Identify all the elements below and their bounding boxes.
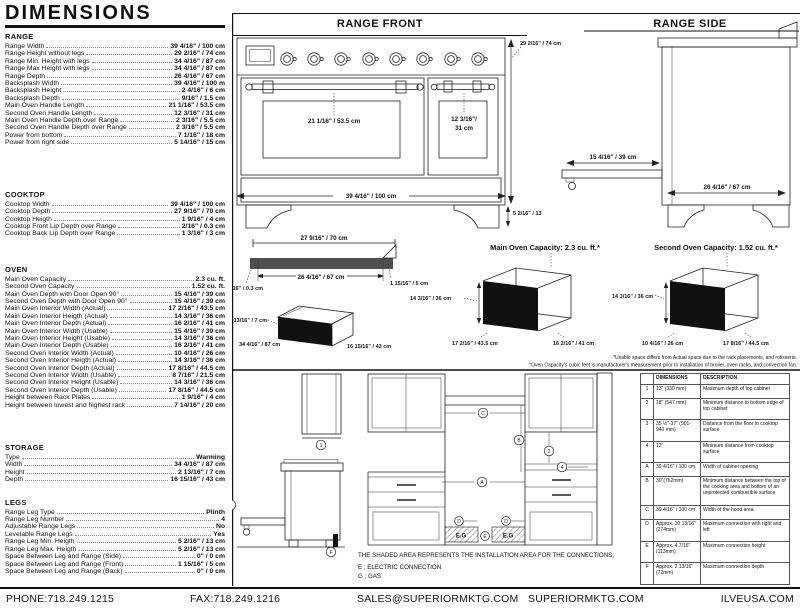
- marker-d-right: D: [502, 517, 511, 526]
- section-heading: STORAGE: [5, 443, 225, 452]
- spec-row: Range Width39 4/16" / 100 cm: [5, 43, 225, 50]
- footer-fax: FAX:718.249.1216: [190, 593, 280, 605]
- spec-row: Main Oven Capacity2.3 cu. ft.: [5, 276, 225, 283]
- spec-section: COOKTOPCooktop Width39 4/16" / 100 cmCoo…: [5, 190, 225, 238]
- spec-row: Second Oven Interior Width (Actual)10 4/…: [5, 350, 225, 357]
- section-heading: OVEN: [5, 265, 225, 274]
- spec-row: Space Between Leg and Range (Side)0" / 0…: [5, 553, 225, 560]
- leg-height-dim: 5 2/16" / 13: [513, 211, 542, 217]
- cooktop-inner-dim: 26 4/16" / 67 cm: [297, 274, 344, 281]
- spec-row: Range Leg Min. Heigth5 2/16" / 13 cm: [5, 538, 225, 545]
- section-heading: LEGS: [5, 498, 225, 507]
- cooktop-outer-dim: 27 9/16" / 70 cm: [300, 235, 347, 242]
- table-row: C39 4/16" / 100 cmWidth of the hood area: [641, 506, 790, 520]
- installation-diagram: E.G E.G 1 2 3 4 A B C D D: [232, 373, 614, 580]
- spec-row: Main Oven Interior Width (Usable)15 4/16…: [5, 328, 225, 335]
- second-handle-dim-1: 12 3/16"/: [451, 116, 477, 123]
- spec-row: Second Oven Capacity1.52 cu. ft.: [5, 283, 225, 290]
- footer-bar: PHONE:718.249.1215 FAX:718.249.1216 SALE…: [0, 587, 800, 609]
- spec-row: Main Oven Interior Height (Usable)14 3/1…: [5, 335, 225, 342]
- spec-row: Range Height without legs29 2/16" / 74 c…: [5, 50, 225, 57]
- side-left-leg: [668, 205, 704, 227]
- range-side-title: RANGE SIDE: [653, 18, 726, 30]
- marker-3: 3: [232, 500, 236, 510]
- spec-sections: RANGERange Width39 4/16" / 100 cmRange H…: [5, 32, 225, 575]
- backsplash-profile: [779, 22, 797, 38]
- spec-row: Main Oven Interior Heigth (Actual)14 3/1…: [5, 313, 225, 320]
- spec-section: OVENMain Oven Capacity2.3 cu. ft.Second …: [5, 265, 225, 409]
- spec-row: Depth16 15/16" / 43 cm: [5, 476, 225, 483]
- marker-c: C: [478, 408, 488, 418]
- page-title: DIMENSIONS: [5, 3, 225, 23]
- range-front-title: RANGE FRONT: [337, 18, 423, 30]
- spec-row: Cooktop Back Lip Depth over Range1 3/16"…: [5, 230, 225, 237]
- spec-row: Range Leg Number4: [5, 516, 225, 523]
- shaded-area-note: THE SHADED AREA REPRESENTS THE INSTALLAT…: [358, 552, 614, 559]
- spec-row: Main Oven Depth with Door Open 90°15 4/1…: [5, 291, 225, 298]
- control-display: [246, 46, 274, 65]
- svg-text:C: C: [481, 411, 485, 417]
- burner-knobs: [281, 53, 488, 65]
- svg-text:2: 2: [548, 449, 551, 455]
- spec-row: Space Between Leg and Range (Back)0" / 0…: [5, 568, 225, 575]
- main-oven-capacity-title: Main Oven Capacity: 2.3 cu. ft.*: [490, 243, 600, 252]
- spec-row: Cooktop Width39 4/16" / 100 cm: [5, 201, 225, 208]
- spec-row: Range Min. Height with legs34 4/16" / 87…: [5, 58, 225, 65]
- second-handle-dim-2: 31 cm: [455, 125, 473, 132]
- spec-row: Adjustable Range LegsNo: [5, 523, 225, 530]
- spec-row: Main Oven Interior Width (Actual)17 2/16…: [5, 305, 225, 312]
- spec-row: Main Oven Handle Depth over Range2 3/16"…: [5, 117, 225, 124]
- capacity-footnote-1: *Usable space differs from Actual space …: [613, 355, 797, 361]
- capacity-footnote-2: *Oven Capacity's cubic feet is manufactu…: [529, 363, 797, 369]
- gas-connection-note: G ; GAS: [358, 573, 381, 580]
- spec-row: Backsplash Depth9/16" / 1.5 cm: [5, 95, 225, 102]
- eg-label-right: E.G: [503, 534, 514, 540]
- main-handle-dim: 21 1/16" / 53.5 cm: [308, 118, 361, 125]
- spec-row: Range Depth26 4/16" / 67 cm: [5, 73, 225, 80]
- eg-label-left: E.G: [456, 534, 467, 540]
- main-oven-capacity-diagram: Main Oven Capacity: 2.3 cu. ft.* 14 3/16…: [410, 243, 600, 347]
- storage-drawer-diagram: 2 13/16" / 7 cm 34 4/16" / 87 cm 16 15/1…: [232, 306, 391, 350]
- second-oven-capacity-title: Second Oven Capacity: 1.52 cu. ft.*: [654, 243, 778, 252]
- cooktop-back-lip-dim: 1 15/16" / 5 cm: [390, 281, 428, 287]
- header-dimensions: DIMENSIONS: [654, 374, 701, 385]
- spec-sheet: DIMENSIONS RANGERange Width39 4/16" / 10…: [0, 0, 800, 609]
- range-side-diagram: RANGE SIDE 15 4/16" / 39 cm 26 4/16" / 6…: [562, 18, 797, 227]
- main-oven-depth-dim: 16 2/16" / 41 cm: [553, 341, 594, 347]
- marker-e: E: [481, 532, 490, 541]
- spec-row: Second Oven Handle Depth over Range2 3/1…: [5, 124, 225, 131]
- spec-row: Cooktop Heigth1 9/16" / 4 cm: [5, 216, 225, 223]
- second-oven-depth-dim: 17 8/16" / 44.5 cm: [723, 341, 769, 347]
- second-oven-height-dim: 14 3/16" / 36 cm: [612, 294, 653, 300]
- spec-row: TypeWarming: [5, 454, 225, 461]
- table-row: 113" (330 mm)Maximum depth of top cabine…: [641, 384, 790, 398]
- table-row: DApprox. 10 13/16" (274mm)Maximum connec…: [641, 520, 790, 542]
- svg-text:D: D: [504, 519, 508, 525]
- spec-row: Second Oven Interior Depth (Usable)17 8/…: [5, 387, 225, 394]
- spec-row: Range Leg TypePlinth: [5, 509, 225, 516]
- footer-site-ilveusa[interactable]: ILVEUSA.COM: [721, 593, 794, 605]
- drawer-depth-dim: 16 15/16" / 43 cm: [347, 344, 391, 350]
- door-depth-dim: 15 4/16" / 39 cm: [589, 154, 636, 161]
- second-oven-width-dim: 10 4/16" / 26 cm: [642, 341, 683, 347]
- range-width-dim: 39 4/16" / 100 cm: [346, 193, 397, 200]
- marker-a: A: [477, 477, 487, 487]
- spec-row: Range Leg Max. Heigth5 2/16" / 13 cm: [5, 546, 225, 553]
- spec-section: LEGSRange Leg TypePlinthRange Leg Number…: [5, 498, 225, 576]
- header-description: DESCRIPTION: [701, 374, 790, 385]
- range-front-diagram: RANGE FRONT: [237, 18, 561, 228]
- spec-row: Main Oven Interior Depth (Actual)16 2/16…: [5, 320, 225, 327]
- marker-f: F: [326, 547, 336, 557]
- table-row: B30"(762mm)Minimum distance between the …: [641, 477, 790, 506]
- spec-row: Second Oven Depth with Door Open 90°15 4…: [5, 298, 225, 305]
- cooktop-bar: [250, 258, 393, 269]
- marker-d-left: D: [455, 517, 464, 526]
- spec-row: Height between Rack Plates1 9/16" / 4 cm: [5, 394, 225, 401]
- spec-row: Backsplash Height2 4/16" / 6 cm: [5, 87, 225, 94]
- footer-phone: PHONE:718.249.1215: [6, 593, 114, 605]
- spec-row: Second Oven Handle Length12 3/16" / 31 c…: [5, 110, 225, 117]
- spec-row: Second Oven Interior Width (Usable)8 7/1…: [5, 372, 225, 379]
- range-depth-dim: 26 4/16" / 67 cm: [703, 184, 750, 191]
- marker-4: 4: [557, 462, 567, 472]
- spec-row: Cooktop Front Lip Depth over Range2/16" …: [5, 223, 225, 230]
- spec-row: Main Oven Handle Length21 1/16" / 53.5 c…: [5, 102, 225, 109]
- header-index: [641, 374, 654, 385]
- front-right-leg: [454, 205, 499, 228]
- drawer-height-dim: 2 13/16" / 7 cm: [232, 318, 267, 324]
- marker-1: 1: [316, 440, 326, 450]
- spec-row: Second Oven Interior Height (Usable)14 3…: [5, 379, 225, 386]
- main-oven-handle: [246, 81, 423, 93]
- section-heading: RANGE: [5, 32, 225, 41]
- spec-section: RANGERange Width39 4/16" / 100 cmRange H…: [5, 32, 225, 147]
- install-side-view: [232, 374, 345, 547]
- marker-2: 2: [544, 446, 554, 456]
- table-row: EApprox. 4 7/16" (113mm)Maximum connecti…: [641, 541, 790, 563]
- spec-row: Power from bottom7 1/16" / 18 cm: [5, 132, 225, 139]
- spec-row: Second Oven Interior Heigth (Actual)14 3…: [5, 357, 225, 364]
- range-height-dim: 29 2/16" / 74 cm: [520, 41, 561, 47]
- spec-row: Space Between Leg and Range (Front)1 15/…: [5, 561, 225, 568]
- footer-email[interactable]: SALES@SUPERIORMKTG.COM: [357, 593, 519, 605]
- marker-b: B: [514, 435, 524, 445]
- table-row: A39 4/16" / 100 cmWidth of cabinet openi…: [641, 463, 790, 477]
- dim-table-body: 113" (330 mm)Maximum depth of top cabine…: [641, 384, 790, 584]
- second-oven-handle: [431, 81, 495, 92]
- spec-row: Height2 13/16" / 7 cm: [5, 469, 225, 476]
- spec-row: Height between lowest and highest rack7 …: [5, 402, 225, 409]
- open-door: [562, 170, 662, 190]
- second-oven-capacity-diagram: Second Oven Capacity: 1.52 cu. ft.* 14 3…: [612, 243, 778, 347]
- dimensions-table: DIMENSIONS DESCRIPTION 113" (330 mm)Maxi…: [640, 373, 790, 585]
- table-row: 412"Minimum distance from cooktop surfac…: [641, 441, 790, 463]
- side-right-leg: [753, 205, 789, 227]
- front-left-leg: [246, 205, 291, 228]
- svg-text:D: D: [457, 519, 461, 525]
- spec-row: Levelable Range LegsYes: [5, 531, 225, 538]
- svg-text:4: 4: [561, 465, 564, 471]
- spec-row: Range Max Height with legs34 4/16" / 87 …: [5, 65, 225, 72]
- spec-row: Main Oven Interior Depth (Usable)16 2/16…: [5, 342, 225, 349]
- svg-text:F: F: [329, 550, 332, 556]
- electric-connection-note: E ; ELECTRIC CONNECTION: [358, 564, 441, 571]
- spec-row: Backsplash Width39 4/16" / 100 m: [5, 80, 225, 87]
- cooktop-top-view: 27 9/16" / 70 cm 26 4/16" / 67 cm 2/16" …: [232, 235, 428, 292]
- footer-site-superiormktg[interactable]: SUPERIORMKTG.COM: [528, 593, 644, 605]
- table-row: FApprox. 2 13/16" (72mm)Maximum connecti…: [641, 563, 790, 585]
- section-heading: COOKTOP: [5, 190, 225, 199]
- svg-text:1: 1: [320, 443, 323, 449]
- main-oven-height-dim: 14 3/16" / 36 cm: [410, 296, 451, 302]
- drawer-width-dim: 34 4/16" / 87 cm: [239, 342, 280, 348]
- main-oven-width-dim: 17 2/16" / 43.5 cm: [452, 341, 498, 347]
- table-row: 335 ½"-37" (901-940 mm)Distance from the…: [641, 420, 790, 442]
- install-front-view: E.G E.G: [368, 373, 612, 545]
- spec-row: Power from right side5 14/16" / 15 cm: [5, 139, 225, 146]
- spec-row: Second Oven Interior Depth (Actual)17 8/…: [5, 365, 225, 372]
- table-header-row: DIMENSIONS DESCRIPTION: [641, 374, 790, 385]
- spec-section: STORAGETypeWarmingWidth34 4/16" / 87 cmH…: [5, 443, 225, 484]
- spec-row: Cooktop Depth27 9/16" / 70 cm: [5, 208, 225, 215]
- cooktop-front-lip-dim: 2/16" / 0.3 cm: [232, 286, 263, 292]
- spec-row: Width34 4/16" / 87 cm: [5, 461, 225, 468]
- title-underline: DIMENSIONS: [5, 3, 225, 28]
- table-row: 218" (547 mm)Minimum distance to bottom …: [641, 398, 790, 420]
- spec-column: DIMENSIONS RANGERange Width39 4/16" / 10…: [0, 0, 233, 585]
